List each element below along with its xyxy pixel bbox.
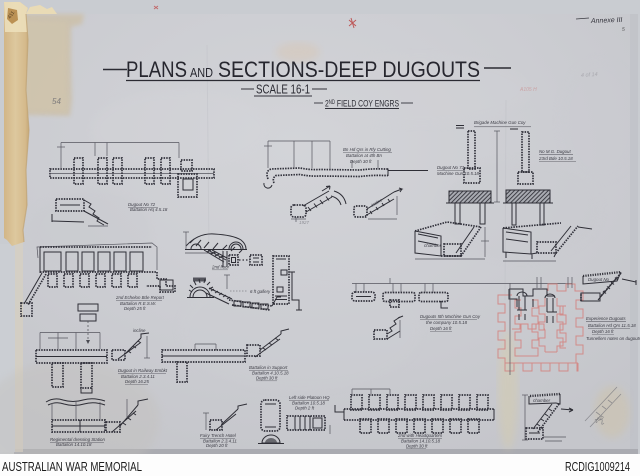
svg-text:Brigade Machine Gun Coy: Brigade Machine Gun Coy	[474, 120, 526, 125]
svg-text:6 ft gallery: 6 ft gallery	[250, 289, 271, 294]
svg-text:Dugout in Railway Embkt: Dugout in Railway Embkt	[118, 368, 168, 373]
svg-text:Battalion in Support: Battalion in Support	[249, 365, 288, 370]
svg-text:A105 H: A105 H	[519, 87, 537, 93]
svg-text:Left side Platoon HQ: Left side Platoon HQ	[289, 395, 330, 400]
svg-text:Dugout No: Dugout No	[588, 277, 610, 282]
svg-text:AND: AND	[190, 65, 213, 80]
svg-text:Battalion Hd Qrs 11.5.18: Battalion Hd Qrs 11.5.18	[588, 323, 636, 328]
svg-text:No M.G. Dugout: No M.G. Dugout	[539, 149, 572, 154]
svg-text:Depth 2 ft: Depth 2 ft	[295, 406, 315, 411]
svg-text:Fairy Trench Hotel: Fairy Trench Hotel	[200, 433, 237, 438]
svg-text:RCDIG1009214: RCDIG1009214	[565, 459, 630, 474]
svg-text:2nd with Headquarters: 2nd with Headquarters	[397, 433, 443, 438]
svg-text:Depth 16.25: Depth 16.25	[125, 379, 149, 384]
svg-text:2nd Echelon Bde Report: 2nd Echelon Bde Report	[115, 295, 165, 300]
svg-text:chamber: chamber	[424, 243, 442, 248]
svg-text:AUSTRALIAN WAR MEMORIAL: AUSTRALIAN WAR MEMORIAL	[2, 459, 142, 474]
svg-text:Depth 30 ft: Depth 30 ft	[350, 159, 372, 164]
svg-text:54: 54	[52, 97, 61, 106]
svg-text:Experience Dugouts: Experience Dugouts	[586, 316, 626, 321]
svg-text:PLANS: PLANS	[126, 57, 187, 82]
svg-text:1927: 1927	[299, 220, 310, 225]
svg-text:Machine Gun 10.5.18: Machine Gun 10.5.18	[437, 171, 480, 176]
svg-text:Dugout No 73: Dugout No 73	[437, 165, 465, 170]
svg-text:Depth 16 ft: Depth 16 ft	[592, 329, 614, 334]
svg-text:the company 10.5.18: the company 10.5.18	[426, 320, 468, 325]
svg-text:5: 5	[622, 27, 625, 33]
svg-text:Tunnellers notes on dugouts: Tunnellers notes on dugouts	[586, 336, 640, 341]
svg-text:Depth 25 ft: Depth 25 ft	[124, 306, 146, 311]
svg-text:Battalion Hq 4.5.18: Battalion Hq 4.5.18	[130, 207, 168, 212]
svg-text:SECTIONS-DEEP DUGOUTS: SECTIONS-DEEP DUGOUTS	[218, 57, 480, 82]
svg-text:Depth 16 ft: Depth 16 ft	[430, 326, 452, 331]
svg-text:Depth 30 ft: Depth 30 ft	[256, 376, 278, 381]
svg-text:Depth 20 ft: Depth 20 ft	[206, 443, 228, 448]
svg-text:Bn Hd Qrs in Rly Cutting: Bn Hd Qrs in Rly Cutting	[343, 147, 391, 152]
svg-text:Dugouts 5th Machine Gun Coy: Dugouts 5th Machine Gun Coy	[420, 314, 481, 319]
svg-text:Battalion at 4th Bn: Battalion at 4th Bn	[346, 153, 382, 158]
svg-text:4 of 14: 4 of 14	[581, 72, 598, 79]
svg-text:2nd floor: 2nd floor	[211, 265, 230, 270]
svg-text:chamber: chamber	[533, 398, 551, 403]
svg-text:Annexe III: Annexe III	[590, 17, 623, 25]
svg-text:Depth 30 ft: Depth 30 ft	[406, 444, 428, 449]
svg-text:SCALE 16-1: SCALE 16-1	[256, 82, 310, 97]
svg-text:23rd Bde 10.5.18: 23rd Bde 10.5.18	[538, 156, 573, 161]
svg-text:incline: incline	[133, 328, 146, 333]
svg-text:2ND FIELD COY ENGRS: 2ND FIELD COY ENGRS	[325, 99, 399, 110]
svg-text:Battalion 14.10.18: Battalion 14.10.18	[56, 442, 92, 447]
